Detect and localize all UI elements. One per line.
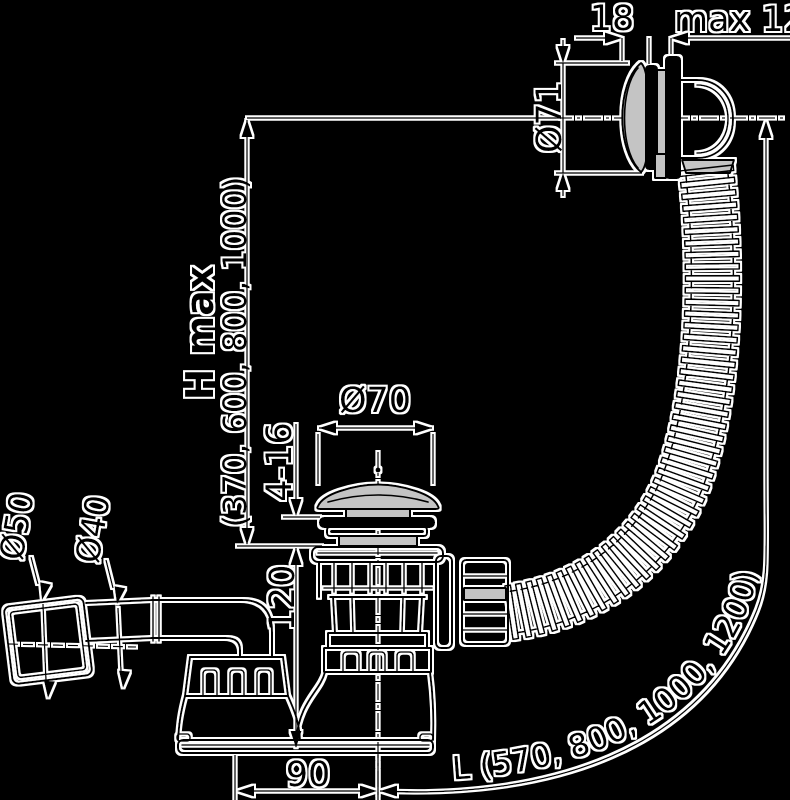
dim-outlet-offset-90: 90 — [235, 755, 378, 800]
plug-seat-plate — [320, 518, 434, 527]
pipe-wall-top — [86, 600, 152, 603]
dim-panel-max-12: max 12 — [671, 0, 790, 54]
dim-socket-diameter-50: Ø50 — [0, 489, 55, 698]
plug-lower-band — [339, 536, 417, 546]
tee-plate — [436, 556, 452, 648]
socket-centerline — [8, 644, 136, 647]
plug-dome-cap — [317, 485, 438, 510]
tee-connector — [436, 556, 508, 648]
sump-skirt-left — [296, 672, 325, 740]
overflow-flange-plate-rear — [666, 57, 680, 178]
hose-corrugations — [505, 165, 740, 639]
plug-diameter-label: Ø70 — [339, 381, 411, 421]
outlet-pipe — [4, 597, 300, 740]
plug-washer — [327, 527, 427, 536]
tee-nut — [462, 560, 508, 644]
dim-install-height: H max (370, 600, 800, 1000) — [178, 120, 322, 546]
outlet-offset-label: 90 — [286, 755, 331, 795]
technical-drawing: 18 max 12 Ø71 — [0, 0, 790, 800]
overflow-body — [680, 80, 733, 158]
overflow-body-inner-contour — [697, 85, 728, 153]
dim-pipe-diameter-40: Ø40 — [68, 492, 130, 688]
cap-depth-label: 18 — [590, 0, 635, 39]
dim-cap-depth-18: 18 — [576, 0, 649, 64]
dim-plug-diameter-70: Ø70 — [318, 381, 433, 484]
drawing-canvas: 18 max 12 Ø71 — [0, 0, 790, 800]
plug-stem-band — [346, 509, 410, 518]
dim-clamping-range-4-16: 4-16 — [260, 422, 320, 517]
install-height-values-label: (370, 600, 800, 1000) — [216, 177, 254, 528]
flexible-hose — [505, 165, 740, 639]
clamping-range-label: 4-16 — [260, 422, 300, 501]
sump-skirt-right — [430, 672, 433, 740]
overflow-diameter-label: Ø71 — [530, 81, 570, 153]
hose-centerline-path — [506, 166, 712, 613]
overflow-lower-collar — [655, 154, 666, 178]
sump-height-label: 120 — [263, 565, 303, 632]
pipe-diameter-label: Ø40 — [68, 492, 118, 566]
bottom-flange — [177, 734, 433, 753]
elbow-outer-wall — [152, 600, 272, 657]
panel-thickness-label: max 12 — [674, 0, 790, 40]
outlet-socket — [4, 597, 93, 684]
socket-diameter-label: Ø50 — [0, 489, 42, 563]
elbow-union-nut — [185, 657, 288, 696]
overflow-assembly — [622, 57, 734, 178]
tee-nut-band — [464, 588, 506, 600]
plug-pin — [376, 468, 381, 473]
elbow-inner-wall — [152, 638, 240, 657]
